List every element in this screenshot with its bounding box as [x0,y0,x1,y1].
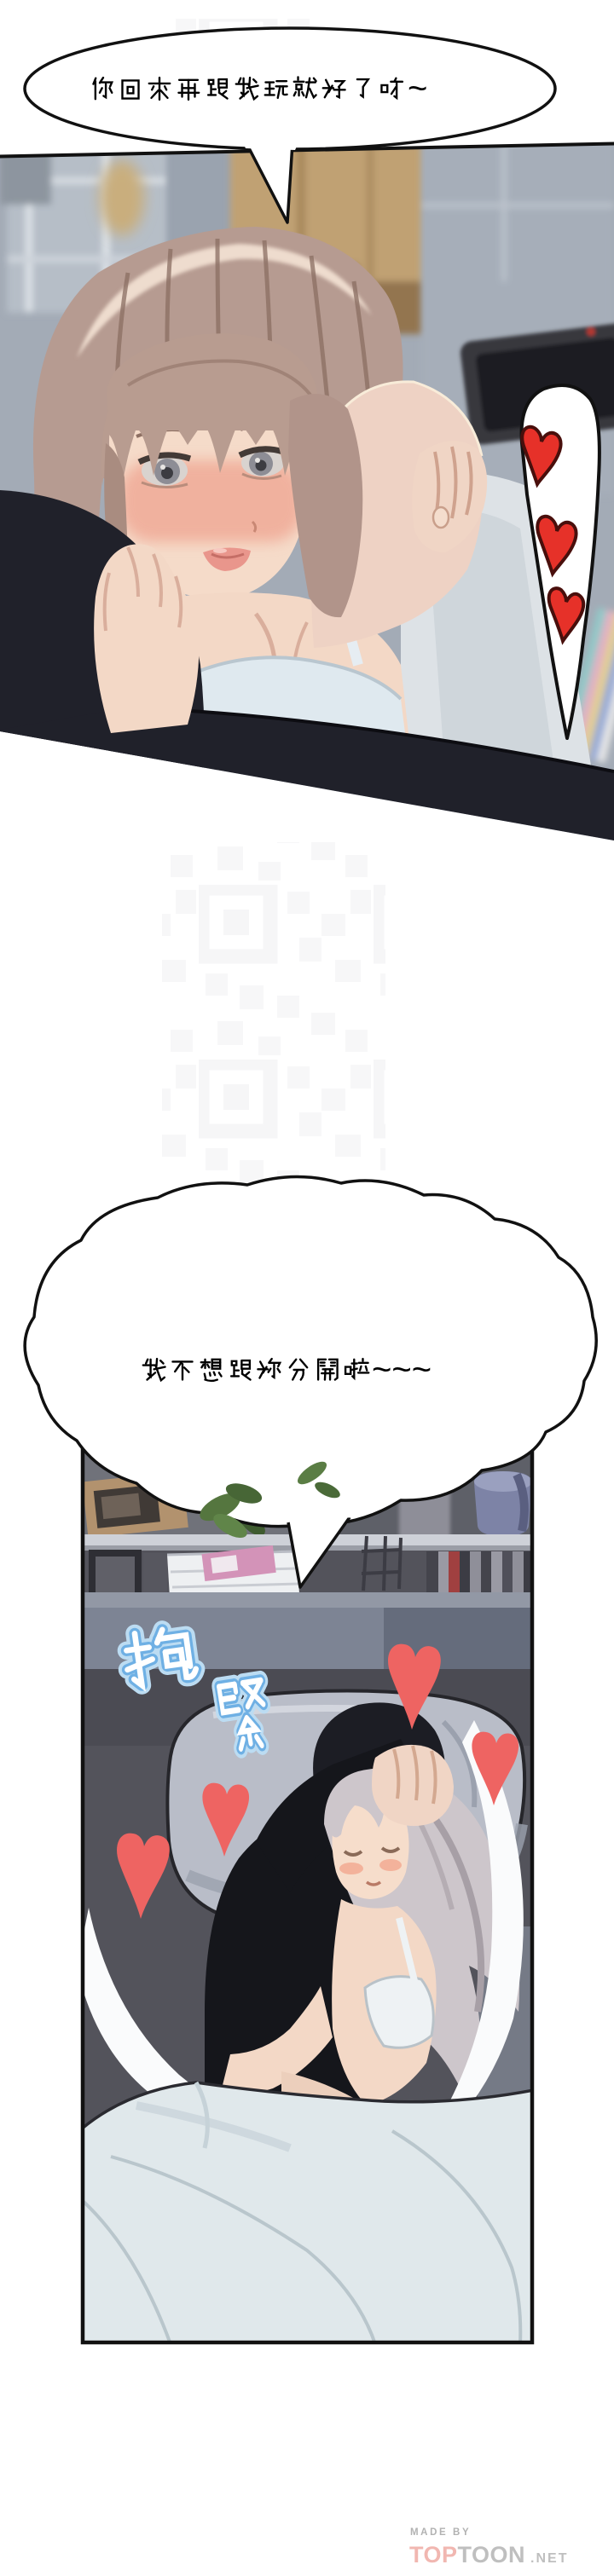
svg-text:~~~: ~~~ [372,1351,432,1389]
svg-text:MADE BY: MADE BY [410,2527,471,2538]
svg-text:~: ~ [408,70,427,107]
